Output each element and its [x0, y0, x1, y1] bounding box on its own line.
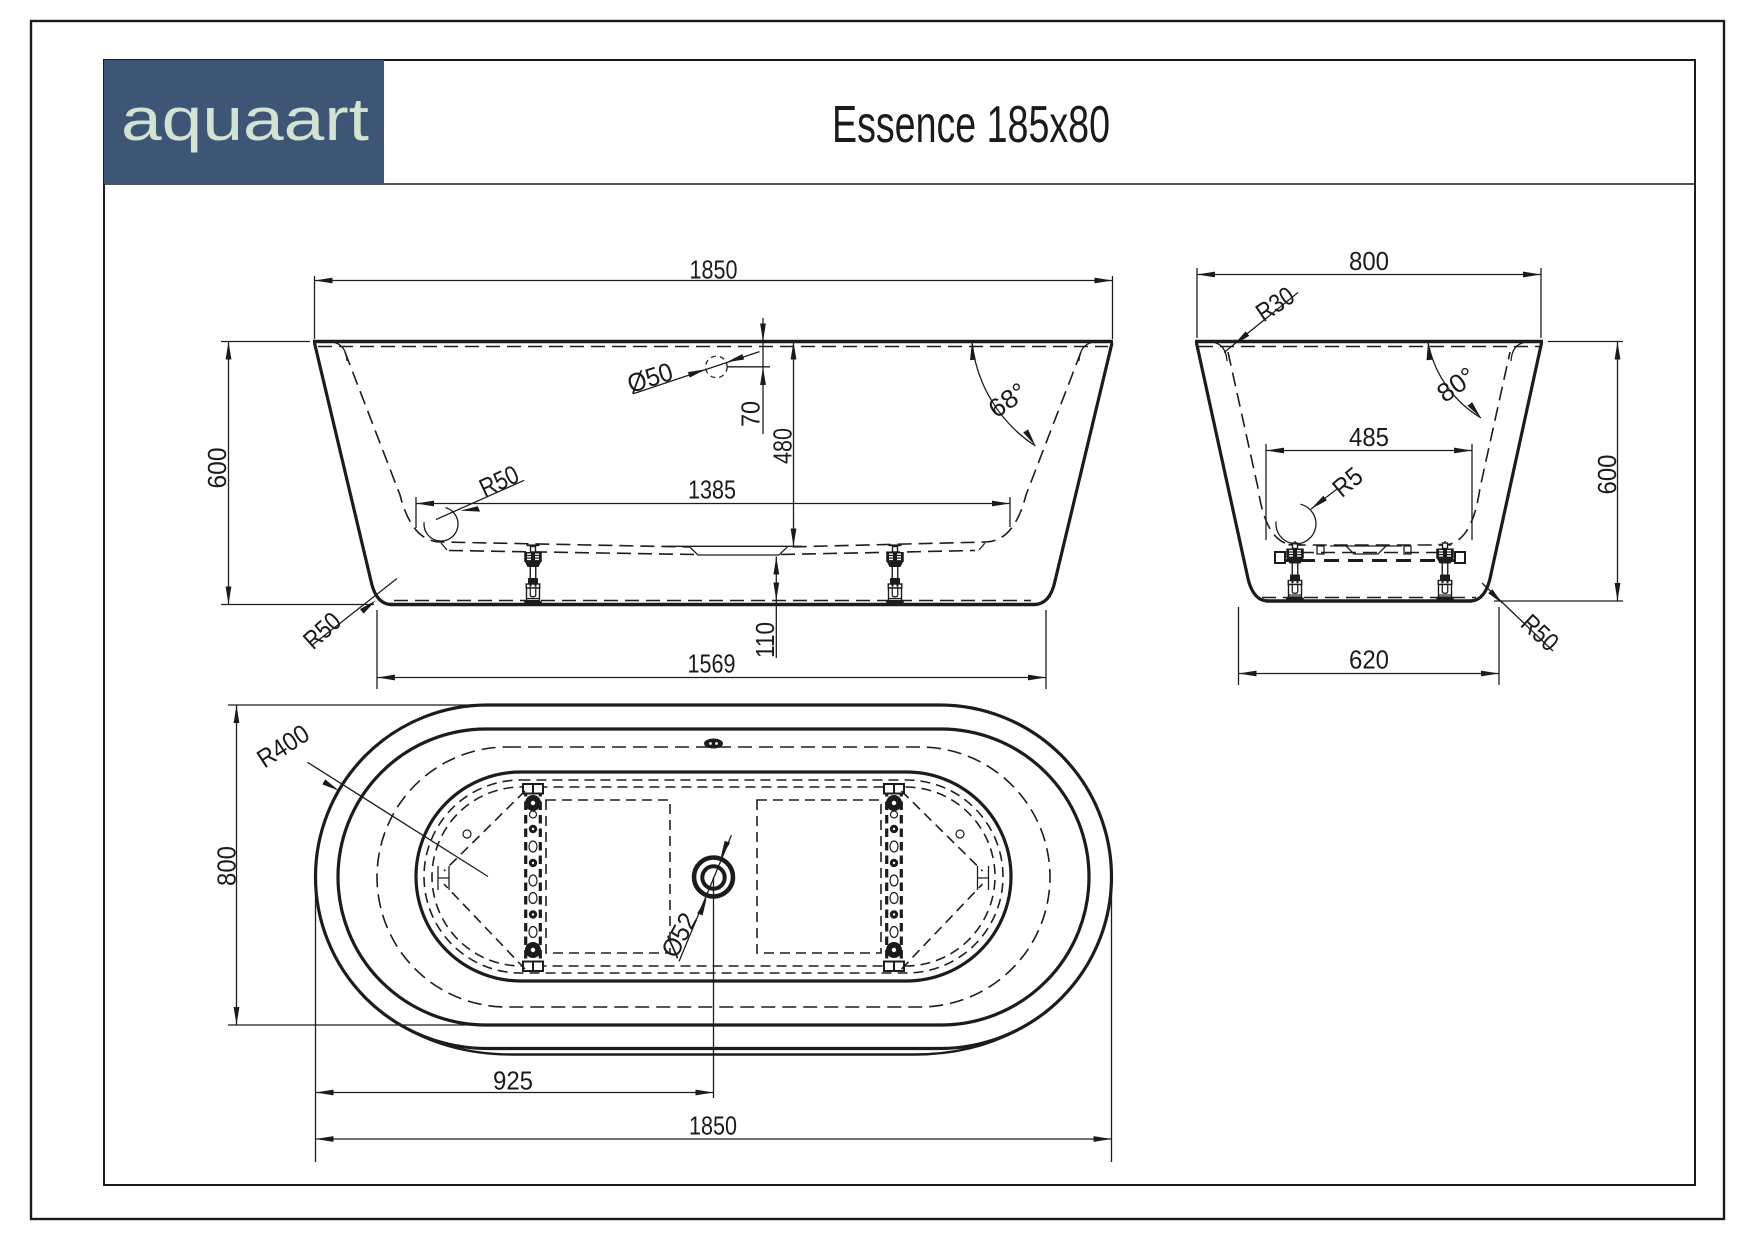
svg-text:1385: 1385 — [688, 475, 736, 505]
svg-text:aquaart: aquaart — [121, 86, 369, 153]
svg-text:485: 485 — [1349, 422, 1389, 452]
svg-text:70: 70 — [736, 401, 766, 427]
svg-text:600: 600 — [202, 448, 232, 489]
svg-text:800: 800 — [212, 846, 242, 886]
svg-text:1569: 1569 — [688, 649, 736, 679]
svg-text:600: 600 — [1592, 455, 1622, 495]
svg-text:110: 110 — [750, 622, 780, 658]
svg-text:800: 800 — [1349, 246, 1389, 276]
svg-text:1850: 1850 — [689, 1111, 737, 1141]
svg-text:925: 925 — [493, 1066, 533, 1096]
svg-text:1850: 1850 — [690, 255, 738, 285]
svg-text:620: 620 — [1349, 645, 1389, 675]
svg-text:Essence 185x80: Essence 185x80 — [832, 96, 1110, 154]
svg-text:480: 480 — [768, 428, 798, 464]
